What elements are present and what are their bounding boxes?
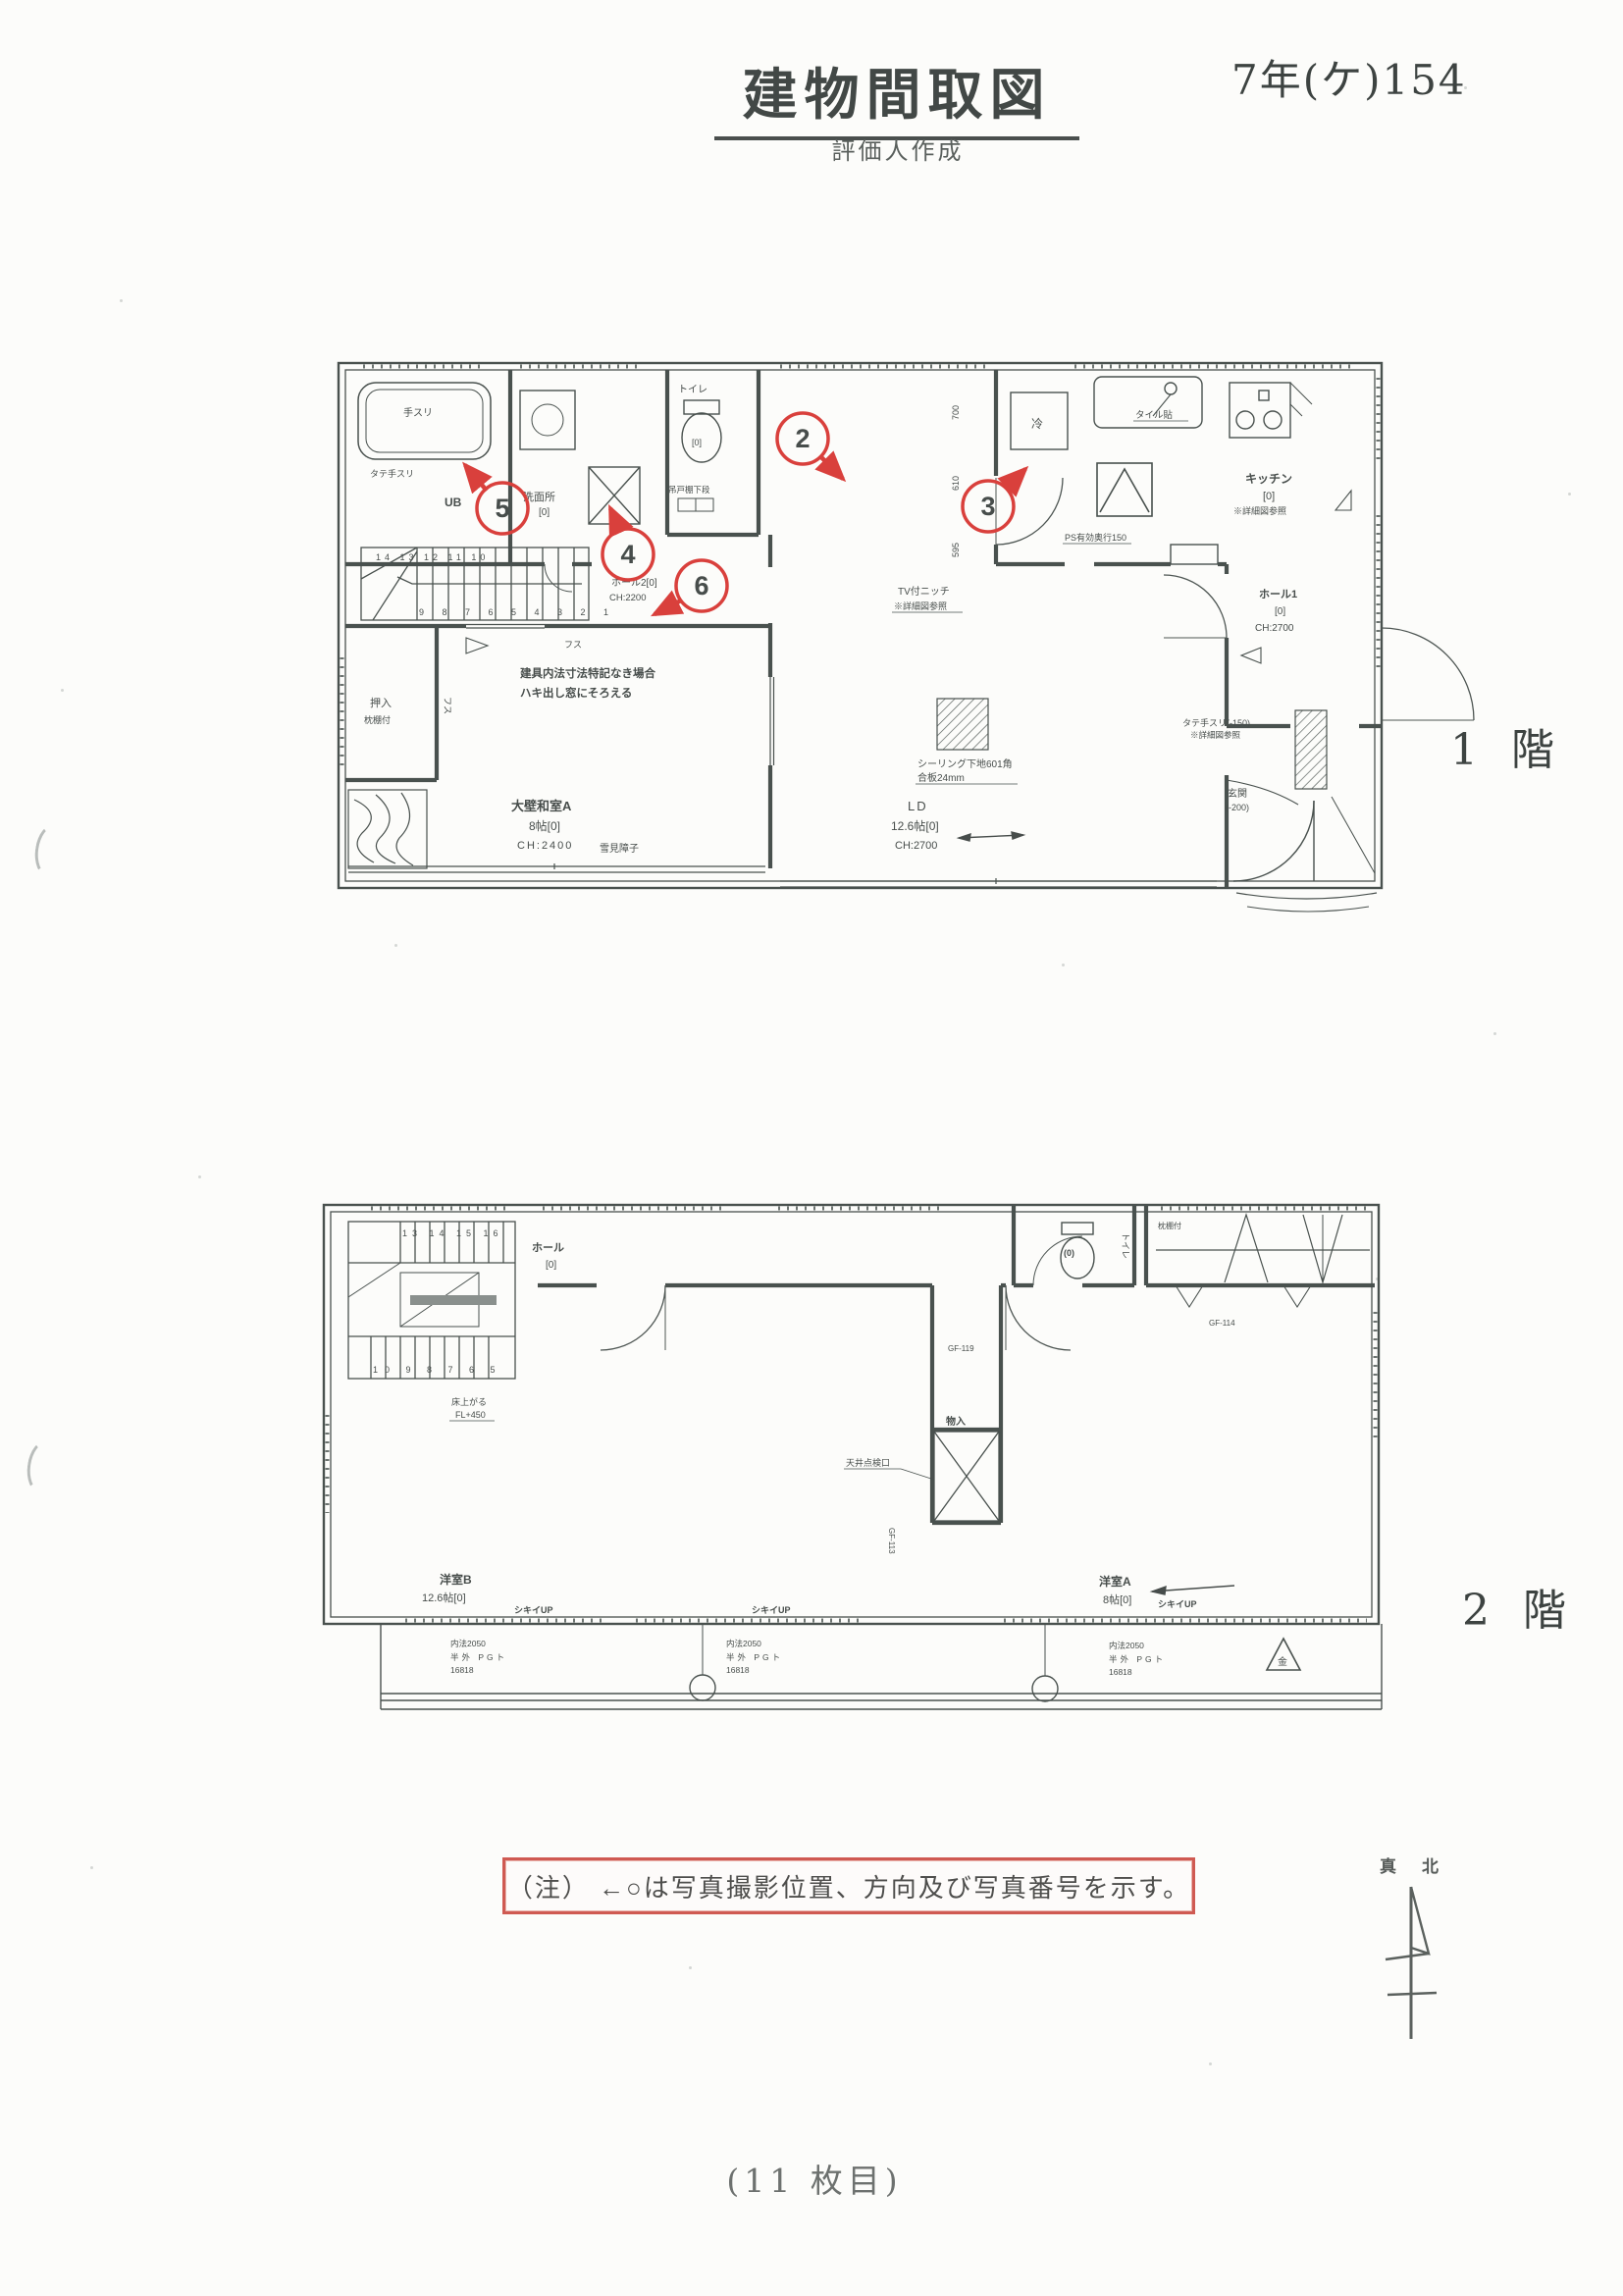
page-number: (11 枚目) xyxy=(648,2155,981,2202)
label-toilet2: トイレ xyxy=(1121,1232,1130,1259)
label-kitchen-note: ※詳細図参照 xyxy=(1233,505,1286,516)
page-subtitle: 評価人作成 xyxy=(775,131,1021,166)
label-rei: 冷 xyxy=(1031,417,1043,431)
toilet-icon xyxy=(682,400,721,462)
window-spec-m2: 半外 PGト xyxy=(726,1652,783,1662)
floor1-door-arcs xyxy=(545,478,1474,720)
floor2-plan: 13 14 15 16 10 9 8 7 6 5 ホール xyxy=(312,1189,1524,1753)
floor2-label: 2 階 xyxy=(1462,1575,1576,1638)
label-tate-tesuri2-note: ※詳細図参照 xyxy=(1190,730,1241,740)
label-builder-note-1: 建具内法寸法特記なき場合 xyxy=(520,666,655,680)
entrance-doors xyxy=(1227,780,1377,912)
label-tv-niche-note: ※詳細図参照 xyxy=(894,600,947,611)
scan-speck xyxy=(90,1866,93,1869)
label-toilet-size: [0] xyxy=(692,438,702,447)
north-compass: 真北 xyxy=(1372,1852,1480,2049)
label-hall-size: [0] xyxy=(546,1260,556,1271)
label-ld-size: 12.6帖[0] xyxy=(891,818,939,833)
label-fusuma-1: フス xyxy=(564,640,582,650)
label-toilet: トイレ xyxy=(678,385,707,395)
label-kitchen-size: [0] xyxy=(1263,491,1275,502)
label-tv-niche: TV付ニッチ xyxy=(898,585,950,598)
label-yoshitsu-a-size: 8帖[0] xyxy=(1103,1593,1131,1606)
label-hall1-size: [0] xyxy=(1275,606,1285,617)
floor2-door-arcs xyxy=(601,1236,1082,1350)
cupboard-icon xyxy=(1097,463,1152,516)
label-genkan: 玄関 xyxy=(1228,787,1247,800)
north-arrow-icon xyxy=(1372,1877,1460,2044)
scan-speck xyxy=(120,299,123,302)
closet-pipe-hangers xyxy=(1156,1215,1370,1307)
wood-floor-alcove xyxy=(348,790,427,868)
label-stairs-note-1: 床上がる xyxy=(451,1396,487,1407)
scan-speck xyxy=(1568,493,1571,496)
window-spec-l3: 16818 xyxy=(450,1665,474,1675)
case-number: 7年(ケ)154 xyxy=(1231,47,1467,107)
photo-legend-note: （注） ←○は写真撮影位置、方向及び写真番号を示す。 xyxy=(502,1857,1195,1914)
scan-speck xyxy=(198,1175,201,1178)
floor2-stair-numbers-bottom: 10 9 8 7 6 5 xyxy=(373,1365,502,1375)
balcony xyxy=(381,1624,1382,1709)
label-yoshitsu-b-size: 12.6帖[0] xyxy=(422,1592,466,1604)
label-gf114: GF-114 xyxy=(1209,1319,1235,1328)
label-yoshitsu-a: 洋室A xyxy=(1099,1574,1131,1589)
shoe-cabinet xyxy=(1295,710,1327,789)
label-shikii-up-3: シキイUP xyxy=(1158,1599,1197,1609)
label-shikii-up-1: シキイUP xyxy=(514,1605,553,1615)
label-hall1-ch: CH:2700 xyxy=(1255,623,1294,634)
label-tate-tesuri: タテ手スリ xyxy=(370,468,414,479)
scan-speck xyxy=(1209,2062,1212,2065)
punch-hole-mark xyxy=(24,1438,62,1495)
label-hall1: ホール1 xyxy=(1259,588,1297,600)
label-ld-ch: CH:2700 xyxy=(895,840,937,852)
floor2-closet-x xyxy=(934,1432,999,1521)
photo-marker-num: 3 xyxy=(980,492,995,521)
punch-hole-mark xyxy=(31,822,70,879)
photo-legend-note-text: （注） ←○は写真撮影位置、方向及び写真番号を示す。 xyxy=(507,1868,1190,1905)
tsuridana-box xyxy=(678,498,713,511)
yoshitsu-a-arrow xyxy=(1152,1586,1234,1594)
bathtub-icon xyxy=(358,383,491,459)
dim-700: 700 xyxy=(951,405,961,420)
photo-marker-num: 6 xyxy=(694,571,708,600)
label-genkan-level: (-200) xyxy=(1226,803,1249,812)
floor2-interior-walls xyxy=(538,1205,1375,1523)
window-spec-m1: 内法2050 xyxy=(726,1639,761,1648)
scan-speck xyxy=(689,1966,692,1969)
label-washitsu-a: 大壁和室A xyxy=(511,799,572,813)
dim-610: 610 xyxy=(951,476,961,491)
label-kin: 金 xyxy=(1278,1655,1287,1668)
floor1-sliding-doors xyxy=(348,625,1217,888)
label-gf119: GF-119 xyxy=(948,1344,974,1353)
label-fusuma-2: フス xyxy=(443,697,452,714)
label-washitsu-a-ch: CH:2400 xyxy=(517,840,573,852)
label-ld: LD xyxy=(908,799,928,813)
scan-speck xyxy=(394,944,397,947)
label-toilet2-size: (0) xyxy=(1064,1248,1074,1258)
label-makuradana: 枕棚付 xyxy=(364,714,391,725)
label-hall: ホール xyxy=(532,1241,564,1254)
label-oshiire: 押入 xyxy=(370,696,392,709)
photo-marker-num: 2 xyxy=(795,424,810,453)
window-spec-r2: 半外 PGト xyxy=(1109,1654,1166,1664)
label-ub: UB xyxy=(445,496,462,509)
label-shikii-up-2: シキイUP xyxy=(752,1605,791,1615)
photo-marker-num: 4 xyxy=(620,540,635,569)
label-tile: タイル貼 xyxy=(1135,409,1174,421)
north-compass-label: 真北 xyxy=(1372,1852,1480,1877)
photo-marker-num: 5 xyxy=(495,494,509,523)
label-yoshitsu-b: 洋室B xyxy=(440,1572,472,1587)
label-ceiling-note-2: 合板24mm xyxy=(917,771,965,784)
washbasin-icon xyxy=(520,391,575,449)
stair-handrail-wall xyxy=(410,1295,497,1305)
scan-speck xyxy=(1493,1032,1496,1035)
label-tenjo-tenkenko: 天井点検口 xyxy=(846,1457,890,1468)
scan-speck xyxy=(1062,964,1065,966)
page-title: 建物間取図 xyxy=(714,51,1079,140)
ceiling-base-hatch xyxy=(937,699,988,750)
floor2-stair-numbers-top: 13 14 15 16 xyxy=(402,1228,503,1238)
label-tsuridana: 吊戸棚下段 xyxy=(668,485,710,495)
dim-595: 595 xyxy=(951,543,961,557)
label-gf113: GF-113 xyxy=(887,1528,896,1554)
label-washitsu-a-size: 8帖[0] xyxy=(529,818,560,833)
label-ps: PS有効奥行150 xyxy=(1065,532,1126,543)
window-spec-l1: 内法2050 xyxy=(450,1639,486,1648)
ld-direction-arrow xyxy=(959,832,1023,841)
label-ceiling-note-1: シーリング下地601角 xyxy=(917,757,1013,770)
label-kitchen: キッチン xyxy=(1245,472,1292,486)
scan-speck xyxy=(1464,86,1467,89)
floor1-label: 1 階 xyxy=(1450,714,1564,777)
label-tate-tesuri2: タテ手スリ(-150) xyxy=(1182,717,1250,728)
label-hall2-ch: CH:2200 xyxy=(609,593,647,603)
label-stairs-note-2: FL+450 xyxy=(455,1410,486,1420)
label-tesuri: 手スリ xyxy=(403,406,433,419)
floor2-underlines xyxy=(449,1421,934,1480)
label-shoji: 雪見障子 xyxy=(600,842,639,855)
gas-stove-icon xyxy=(1230,383,1312,438)
floor1-stair-numbers-bottom: 9 8 7 6 5 4 3 2 1 xyxy=(419,607,616,617)
window-spec-l2: 半外 PGト xyxy=(450,1652,507,1662)
window-spec-r1: 内法2050 xyxy=(1109,1641,1144,1650)
window-spec-r3: 16818 xyxy=(1109,1667,1132,1677)
label-makuradana2: 枕棚付 xyxy=(1158,1221,1181,1230)
scan-speck xyxy=(61,689,64,692)
label-builder-note-2: ハキ出し窓にそろえる xyxy=(520,686,632,700)
label-monoire: 物入 xyxy=(946,1415,966,1428)
pipe-space xyxy=(1171,545,1218,564)
label-senmenjo-size: [0] xyxy=(539,507,550,518)
window-spec-m3: 16818 xyxy=(726,1665,750,1675)
floor1-plan: 14 13 12 11 10 9 8 7 6 5 4 3 2 1 xyxy=(319,343,1511,937)
floor1-stair-numbers-top: 14 13 12 11 10 xyxy=(376,552,489,562)
